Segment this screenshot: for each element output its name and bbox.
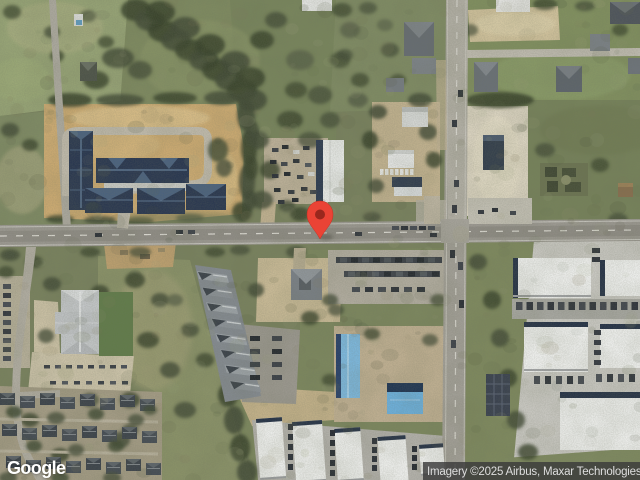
svg-text:Google: Google <box>7 458 66 478</box>
svg-text:Imagery ©2025 Airbus, Maxar Te: Imagery ©2025 Airbus, Maxar Technologies <box>427 466 640 478</box>
